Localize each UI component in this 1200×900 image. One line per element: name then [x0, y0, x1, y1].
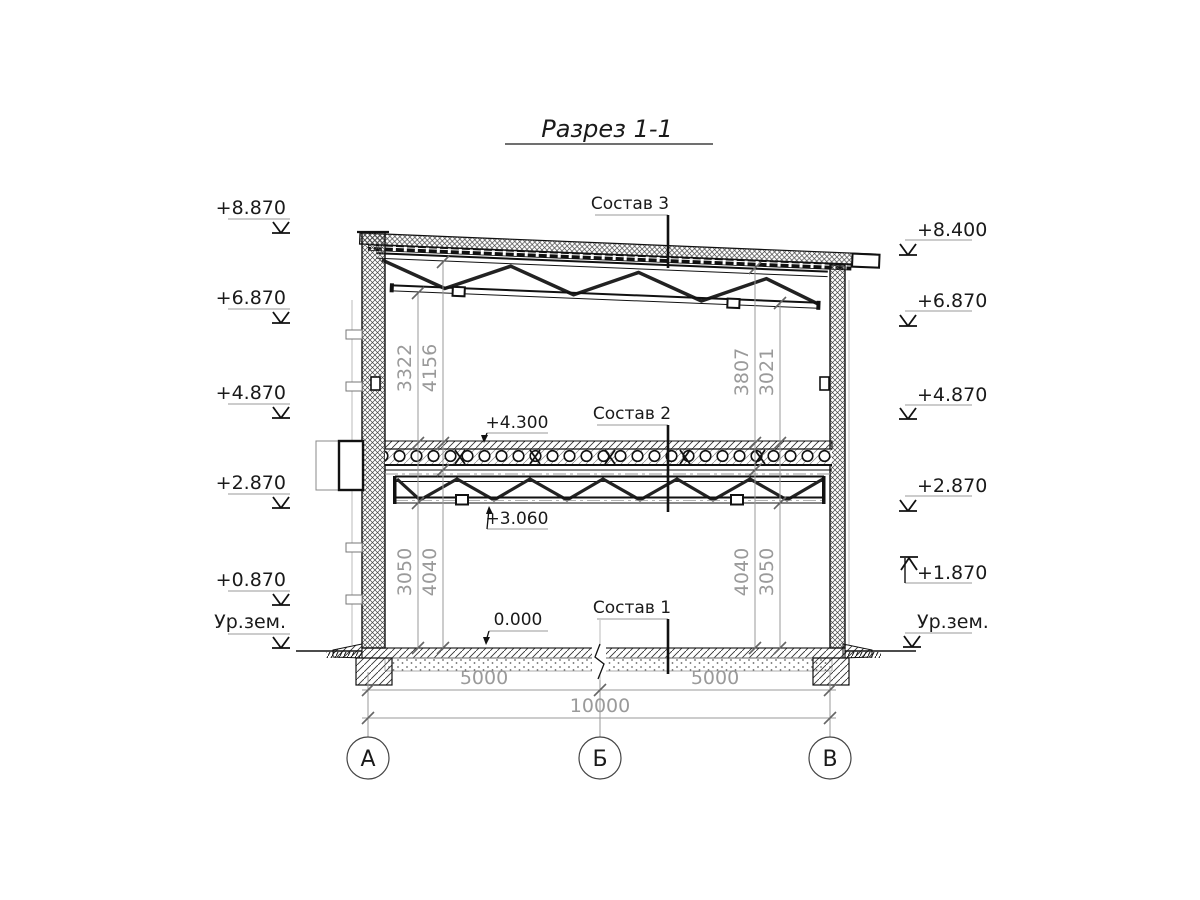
- level-arrow-down: [272, 594, 290, 605]
- spot-mark-3060: +3.060: [486, 506, 549, 529]
- svg-text:+2.870: +2.870: [216, 472, 286, 494]
- level-mark: +4.870: [899, 384, 987, 419]
- svg-text:Состав 3: Состав 3: [591, 194, 669, 214]
- wall-panel-joint: [346, 543, 362, 552]
- foundation-right: [813, 658, 849, 685]
- level-mark: +2.870: [899, 475, 987, 511]
- level-arrow-down: [899, 244, 917, 255]
- roof-edge-detail: [852, 254, 880, 268]
- vdim-3322: 3322: [394, 344, 416, 392]
- wall-console-outline: [316, 441, 339, 490]
- svg-text:+0.870: +0.870: [216, 569, 286, 591]
- wall-panel-joint: [346, 382, 362, 391]
- svg-text:+1.870: +1.870: [917, 562, 987, 584]
- level-arrow-down: [272, 497, 290, 508]
- truss-connection-plate: [456, 495, 468, 505]
- lower-truss: [393, 476, 826, 505]
- slab-topping: [385, 441, 832, 449]
- truss-connection-plate: [727, 299, 739, 308]
- svg-text:+4.870: +4.870: [917, 384, 987, 406]
- wall-console: [339, 441, 363, 490]
- level-arrow-down: [899, 408, 917, 419]
- level-mark: +8.400: [899, 219, 987, 255]
- level-mark-ground: Ур.зем.: [214, 611, 290, 648]
- axis-label-v: В: [822, 747, 837, 772]
- level-arrow-down: [903, 636, 921, 647]
- elevation-marks-right: +8.400 +6.870 +4.870 +2.870 +1.870 Ур.зе…: [899, 219, 989, 647]
- drawing-canvas: Разрез 1-1: [0, 0, 1200, 900]
- leader-arrowhead: [483, 637, 490, 645]
- svg-text:0.000: 0.000: [494, 610, 543, 630]
- vdim-3021: 3021: [756, 348, 778, 396]
- level-arrow-down: [272, 637, 290, 648]
- svg-text:Состав 1: Состав 1: [593, 598, 671, 618]
- axis-markers: А Б В: [347, 737, 851, 779]
- level-arrow-down: [899, 315, 917, 326]
- level-mark: +4.870: [216, 382, 290, 418]
- drawing-title: Разрез 1-1: [541, 115, 673, 143]
- wall-panel-joint: [346, 330, 362, 339]
- roof-assembly: [358, 233, 880, 314]
- vdim-4040-right: 4040: [731, 548, 753, 596]
- level-arrow-down: [272, 312, 290, 323]
- level-mark: +0.870: [216, 569, 290, 605]
- level-arrow-down: [272, 407, 290, 418]
- svg-text:+8.400: +8.400: [917, 219, 987, 241]
- level-mark: +8.870: [216, 197, 290, 233]
- level-mark-ground: Ур.зем.: [903, 611, 989, 647]
- hdim-span-2: 5000: [691, 667, 739, 689]
- spot-mark-0000: 0.000: [483, 610, 548, 645]
- left-wall-body: [362, 232, 385, 648]
- level-mark: +6.870: [899, 290, 987, 326]
- svg-text:+4.870: +4.870: [216, 382, 286, 404]
- level-mark: +2.870: [216, 472, 290, 508]
- svg-text:+2.870: +2.870: [917, 475, 987, 497]
- vdim-4156: 4156: [419, 344, 441, 392]
- truss-connection-plate: [453, 287, 465, 296]
- spot-mark-4300: +4.300: [481, 413, 548, 443]
- vdim-3050-right: 3050: [756, 548, 778, 596]
- svg-text:+8.870: +8.870: [216, 197, 286, 219]
- level-arrow-down: [899, 500, 917, 511]
- foundation-left: [356, 658, 392, 685]
- vdim-4040-left: 4040: [419, 548, 441, 596]
- axis-label-b: Б: [592, 747, 607, 772]
- truss-connection-plate: [731, 495, 743, 505]
- svg-text:Ур.зем.: Ур.зем.: [214, 611, 286, 633]
- ground-slab: [296, 620, 916, 685]
- section-drawing: Разрез 1-1: [0, 0, 1200, 900]
- right-wall-body: [830, 265, 845, 648]
- embedded-plate: [820, 377, 829, 390]
- vdim-3807: 3807: [731, 348, 753, 396]
- level-mark-up: +1.870: [900, 557, 987, 584]
- hdim-total: 10000: [570, 695, 630, 717]
- hdim-span-1: 5000: [460, 667, 508, 689]
- vdim-3050-left: 3050: [394, 548, 416, 596]
- svg-text:+4.300: +4.300: [486, 413, 549, 433]
- level-mark: +6.870: [216, 287, 290, 323]
- floor-slab: [385, 441, 832, 474]
- svg-text:+6.870: +6.870: [917, 290, 987, 312]
- svg-text:+3.060: +3.060: [486, 509, 549, 529]
- left-wall: [316, 232, 389, 648]
- svg-text:+6.870: +6.870: [216, 287, 286, 309]
- level-arrow-up: [900, 557, 918, 570]
- elevation-marks-left: +8.870 +6.870 +4.870 +2.870 +0.870 Ур.зе…: [214, 197, 290, 648]
- level-arrow-down: [272, 222, 290, 233]
- svg-text:Ур.зем.: Ур.зем.: [917, 611, 989, 633]
- floor-underlay: [385, 658, 832, 671]
- axis-label-a: А: [360, 747, 375, 772]
- wall-panel-joint: [346, 595, 362, 604]
- embedded-plate: [371, 377, 380, 390]
- svg-text:Состав 2: Состав 2: [593, 404, 671, 424]
